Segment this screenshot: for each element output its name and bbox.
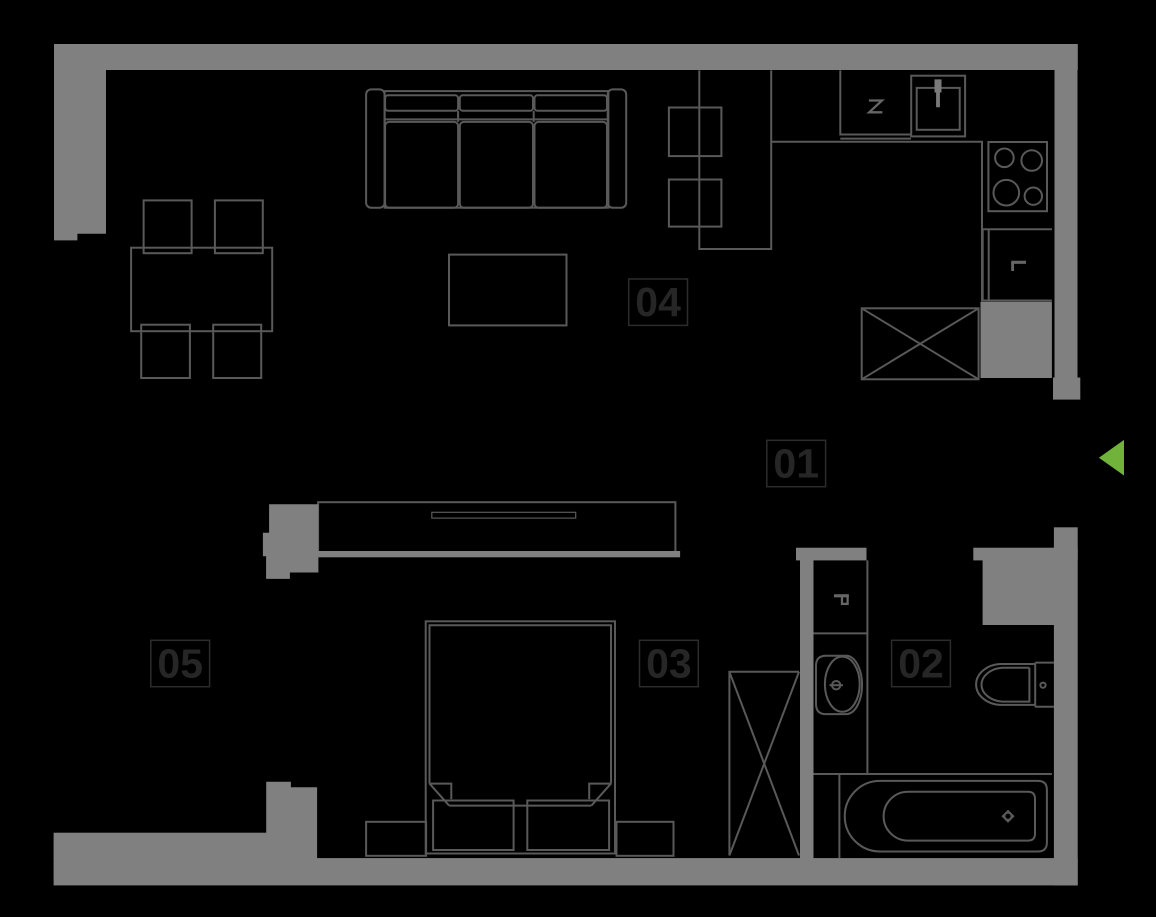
svg-text:04: 04 — [635, 279, 681, 325]
svg-text:02: 02 — [898, 640, 944, 686]
svg-text:05: 05 — [157, 640, 203, 686]
svg-text:03: 03 — [646, 640, 692, 686]
svg-text:01: 01 — [773, 440, 819, 486]
